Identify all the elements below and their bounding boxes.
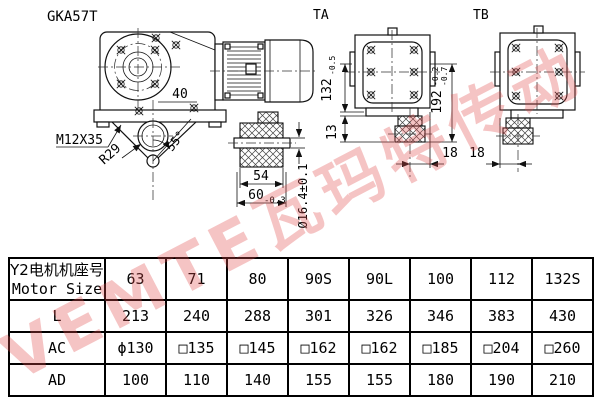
spec-cell: □204 xyxy=(471,332,532,364)
spec-cell: 213 xyxy=(105,300,166,332)
spec-cell: 140 xyxy=(227,364,288,396)
spec-cell: 190 xyxy=(471,364,532,396)
svg-text:60: 60 xyxy=(248,188,264,203)
svg-text:54: 54 xyxy=(253,169,269,184)
spec-cell: □135 xyxy=(166,332,227,364)
column-header: 71 xyxy=(166,258,227,300)
svg-text:-0.3: -0.3 xyxy=(264,196,286,206)
spec-cell: □185 xyxy=(410,332,471,364)
hub-section-view xyxy=(228,112,296,167)
spec-cell: 326 xyxy=(349,300,410,332)
svg-text:40: 40 xyxy=(172,87,188,102)
table-row-ac: AC ϕ130 □135 □145 □162 □162 □185 □204 □2… xyxy=(9,332,593,364)
spec-cell: 180 xyxy=(410,364,471,396)
svg-text:192: 192 xyxy=(430,90,445,113)
svg-text:M12X35: M12X35 xyxy=(56,133,103,148)
svg-text:-0.5: -0.5 xyxy=(328,56,337,75)
spec-cell: □162 xyxy=(349,332,410,364)
row-label: AC xyxy=(9,332,105,364)
spec-cell: 110 xyxy=(166,364,227,396)
spec-cell: 210 xyxy=(532,364,593,396)
column-header: 132S xyxy=(532,258,593,300)
table-row-l: L 213 240 288 301 326 346 383 430 xyxy=(9,300,593,332)
svg-text:Ø16.4±0.1: Ø16.4±0.1 xyxy=(296,163,310,228)
view-tb xyxy=(490,26,585,172)
spec-cell: 301 xyxy=(288,300,349,332)
spec-cell: □260 xyxy=(532,332,593,364)
column-header: 112 xyxy=(471,258,532,300)
spec-cell: 430 xyxy=(532,300,593,332)
view-ta xyxy=(345,28,440,178)
column-header: 90S xyxy=(288,258,349,300)
svg-text:18: 18 xyxy=(469,146,485,161)
spec-cell: 100 xyxy=(105,364,166,396)
spec-cell: 288 xyxy=(227,300,288,332)
spec-cell: 155 xyxy=(349,364,410,396)
spec-cell: □162 xyxy=(288,332,349,364)
svg-text:13: 13 xyxy=(325,124,340,140)
technical-drawing: GKA57T TA TB xyxy=(0,0,600,252)
column-header: 90L xyxy=(349,258,410,300)
svg-text:-0.2: -0.2 xyxy=(431,67,440,86)
svg-text:132: 132 xyxy=(320,78,335,101)
view-tb-label: TB xyxy=(473,8,489,23)
spec-table: Y2电机机座号 Motor Size 63 71 80 90S 90L 100 … xyxy=(8,257,594,397)
dim-bore: Ø16.4±0.1 xyxy=(291,122,310,229)
spec-cell: 383 xyxy=(471,300,532,332)
spec-cell: 346 xyxy=(410,300,471,332)
spec-cell: 240 xyxy=(166,300,227,332)
column-header: 63 xyxy=(105,258,166,300)
spec-cell: 155 xyxy=(288,364,349,396)
header-motor-size-cn: Y2电机机座号 xyxy=(10,261,104,280)
dim-54: 54 xyxy=(240,168,283,188)
main-view-gearbox xyxy=(94,28,226,200)
main-view-motor xyxy=(210,40,318,102)
table-row-ad: AD 100 110 140 155 155 180 190 210 xyxy=(9,364,593,396)
row-label: AD xyxy=(9,364,105,396)
svg-text:-0.7: -0.7 xyxy=(440,67,449,86)
view-ta-label: TA xyxy=(313,8,329,23)
header-motor-size: Y2电机机座号 Motor Size xyxy=(9,258,105,300)
row-label: L xyxy=(9,300,105,332)
column-header: 100 xyxy=(410,258,471,300)
column-header: 80 xyxy=(227,258,288,300)
spec-cell: ϕ130 xyxy=(105,332,166,364)
dim-13: 13 xyxy=(325,116,396,142)
svg-text:18: 18 xyxy=(442,146,458,161)
model-label: GKA57T xyxy=(47,9,98,25)
spec-cell: □145 xyxy=(227,332,288,364)
header-motor-size-en: Motor Size xyxy=(10,280,104,298)
